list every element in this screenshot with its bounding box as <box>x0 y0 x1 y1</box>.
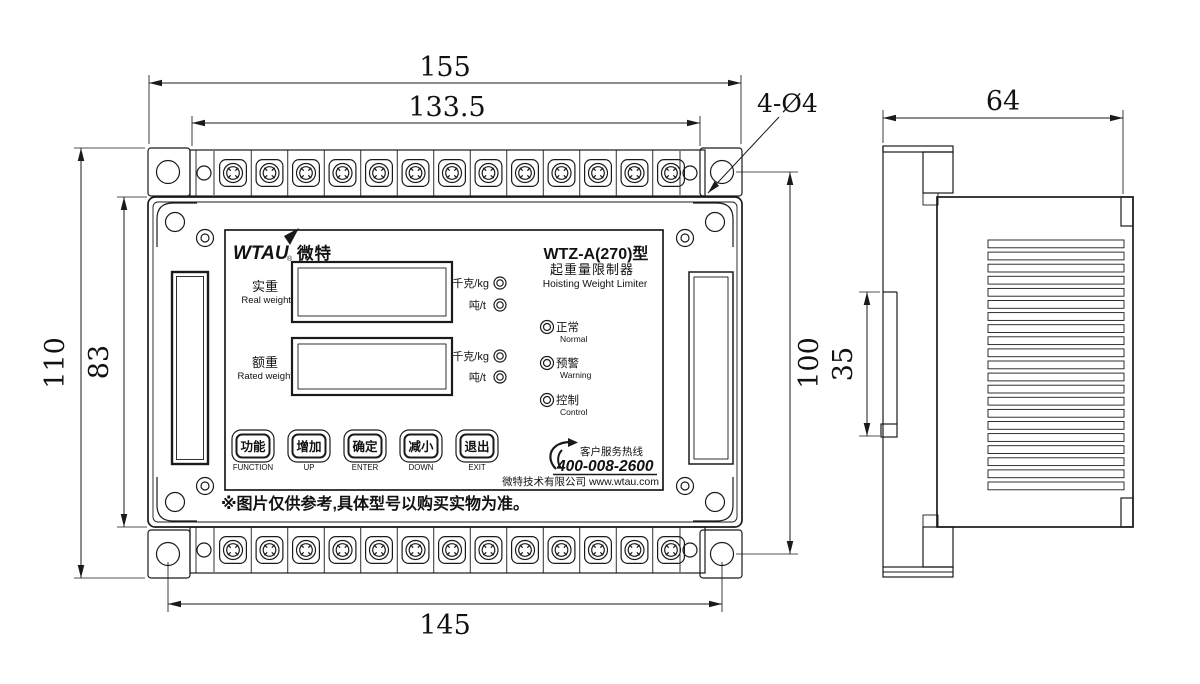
dim-label-145: 145 <box>419 610 471 641</box>
control-label-cn: 控制 <box>556 393 579 407</box>
button-up-label-en: UP <box>304 463 315 472</box>
dim-label-35: 35 <box>828 347 859 381</box>
model-title-block: WTZ-A(270)型 起重量限制器 Hoisting Weight Limit… <box>543 245 649 290</box>
dim-label-100: 100 <box>794 337 825 389</box>
company-and-website: 微特技术有限公司 www.wtau.com <box>502 475 659 488</box>
button-enter-label-cn: 确定 <box>352 439 378 454</box>
product-name-en: Hoisting Weight Limiter <box>543 279 648 290</box>
real-weight-label-cn: 实重 <box>252 279 278 294</box>
normal-label-cn: 正常 <box>556 321 579 334</box>
logo-text-cn: 微特 <box>296 243 332 263</box>
button-down-label-cn: 减小 <box>408 439 434 454</box>
button-function-label-cn: 功能 <box>240 439 266 454</box>
rated-weight-label-cn: 额重 <box>252 355 278 370</box>
normal-label-en: Normal <box>560 334 588 344</box>
unit-t-label-2: 吨/t <box>469 371 486 384</box>
hotline-label: 客户服务热线 <box>580 445 643 458</box>
warning-label-en: Warning <box>560 370 592 380</box>
dim-label-83: 83 <box>84 345 115 379</box>
unit-kg-label-2: 千克/kg <box>452 350 489 363</box>
dim-label-64: 64 <box>986 86 1020 117</box>
rated-weight-label-en: Rated weight <box>238 371 294 382</box>
dim-label-110: 110 <box>40 337 71 389</box>
dim-label-155: 155 <box>419 52 471 83</box>
unit-t-label-1: 吨/t <box>469 299 486 312</box>
dimension-drawing-svg: WTAU ® 微特 实重 Real weight 千克/kg 吨/t 额重 Ra… <box>0 0 1200 684</box>
dim-label-4-d4: 4-Ø4 <box>757 89 818 118</box>
unit-kg-label-1: 千克/kg <box>452 277 489 290</box>
button-exit-label-cn: 退出 <box>464 439 489 454</box>
dim-label-133-5: 133.5 <box>408 92 485 123</box>
model-number: WTZ-A(270)型 <box>544 245 649 263</box>
real-weight-label-en: Real weight <box>241 295 291 306</box>
button-up-label-cn: 增加 <box>296 439 321 454</box>
control-label-en: Control <box>560 407 588 417</box>
button-function-label-en: FUNCTION <box>233 463 273 472</box>
logo-text-en: WTAU <box>233 243 290 264</box>
warning-label-cn: 预警 <box>556 356 579 370</box>
button-down-label-en: DOWN <box>409 463 434 472</box>
engineering-drawing-page: WTAU ® 微特 实重 Real weight 千克/kg 吨/t 额重 Ra… <box>0 0 1200 684</box>
hotline-number: 400-008-2600 <box>556 458 654 475</box>
product-name-cn: 起重量限制器 <box>550 262 634 277</box>
disclaimer-note: ※图片仅供参考,具体型号以购买实物为准。 <box>221 494 529 513</box>
button-enter-label-en: ENTER <box>352 463 379 472</box>
button-exit-label-en: EXIT <box>468 463 486 472</box>
